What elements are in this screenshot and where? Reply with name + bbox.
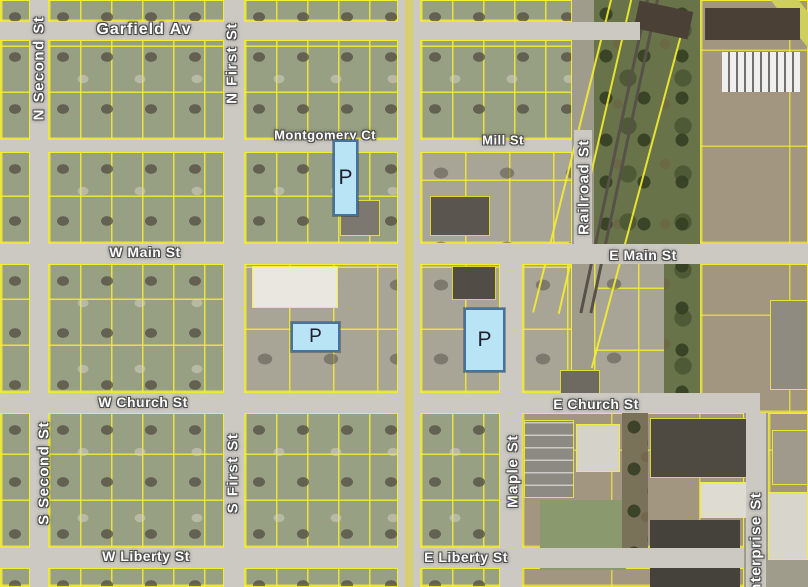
creek-scrub: [622, 413, 648, 548]
building: [705, 8, 800, 40]
city-block: [0, 0, 30, 22]
building: [560, 370, 600, 394]
building: [576, 424, 620, 472]
building: [452, 266, 496, 300]
road-church-st: [0, 393, 760, 413]
aerial-map-canvas[interactable]: Garfield Av N Second St N First St Montg…: [0, 0, 808, 587]
building: [430, 196, 490, 236]
road-central-highway: [398, 0, 420, 587]
road-montgomery-mill: [0, 140, 572, 152]
city-block: [594, 264, 664, 413]
city-block: [420, 0, 572, 22]
city-block: [0, 568, 30, 587]
road-first-st: [224, 0, 244, 587]
building: [650, 418, 748, 478]
city-block: [48, 0, 224, 22]
city-block: [0, 152, 30, 244]
building: [700, 482, 748, 518]
city-block: [48, 264, 224, 393]
city-block: [48, 152, 224, 244]
road-second-st: [30, 0, 48, 587]
city-block: [48, 413, 224, 548]
city-block: [244, 0, 398, 22]
city-block: [48, 568, 224, 587]
city-block: [420, 413, 500, 548]
road-garfield-av: [0, 22, 640, 40]
parking-marker-1[interactable]: P: [333, 140, 358, 216]
city-block: [420, 568, 500, 587]
city-block: [420, 40, 572, 140]
road-liberty-st: [0, 548, 744, 568]
city-block: [0, 413, 30, 548]
city-block: [244, 40, 398, 140]
parking-marker-2[interactable]: P: [291, 322, 340, 352]
building: [252, 266, 338, 308]
building: [722, 52, 800, 92]
parking-lot: [524, 420, 574, 498]
city-block: [0, 264, 30, 393]
parking-marker-3[interactable]: P: [464, 308, 505, 372]
city-block: [0, 40, 30, 140]
road-railroad-st: [574, 130, 592, 264]
city-block: [244, 568, 398, 587]
building: [770, 300, 808, 390]
city-block: [244, 413, 398, 548]
building: [772, 430, 808, 485]
city-block: [48, 40, 224, 140]
building: [768, 492, 808, 560]
road-enterprise-st: [746, 413, 766, 587]
